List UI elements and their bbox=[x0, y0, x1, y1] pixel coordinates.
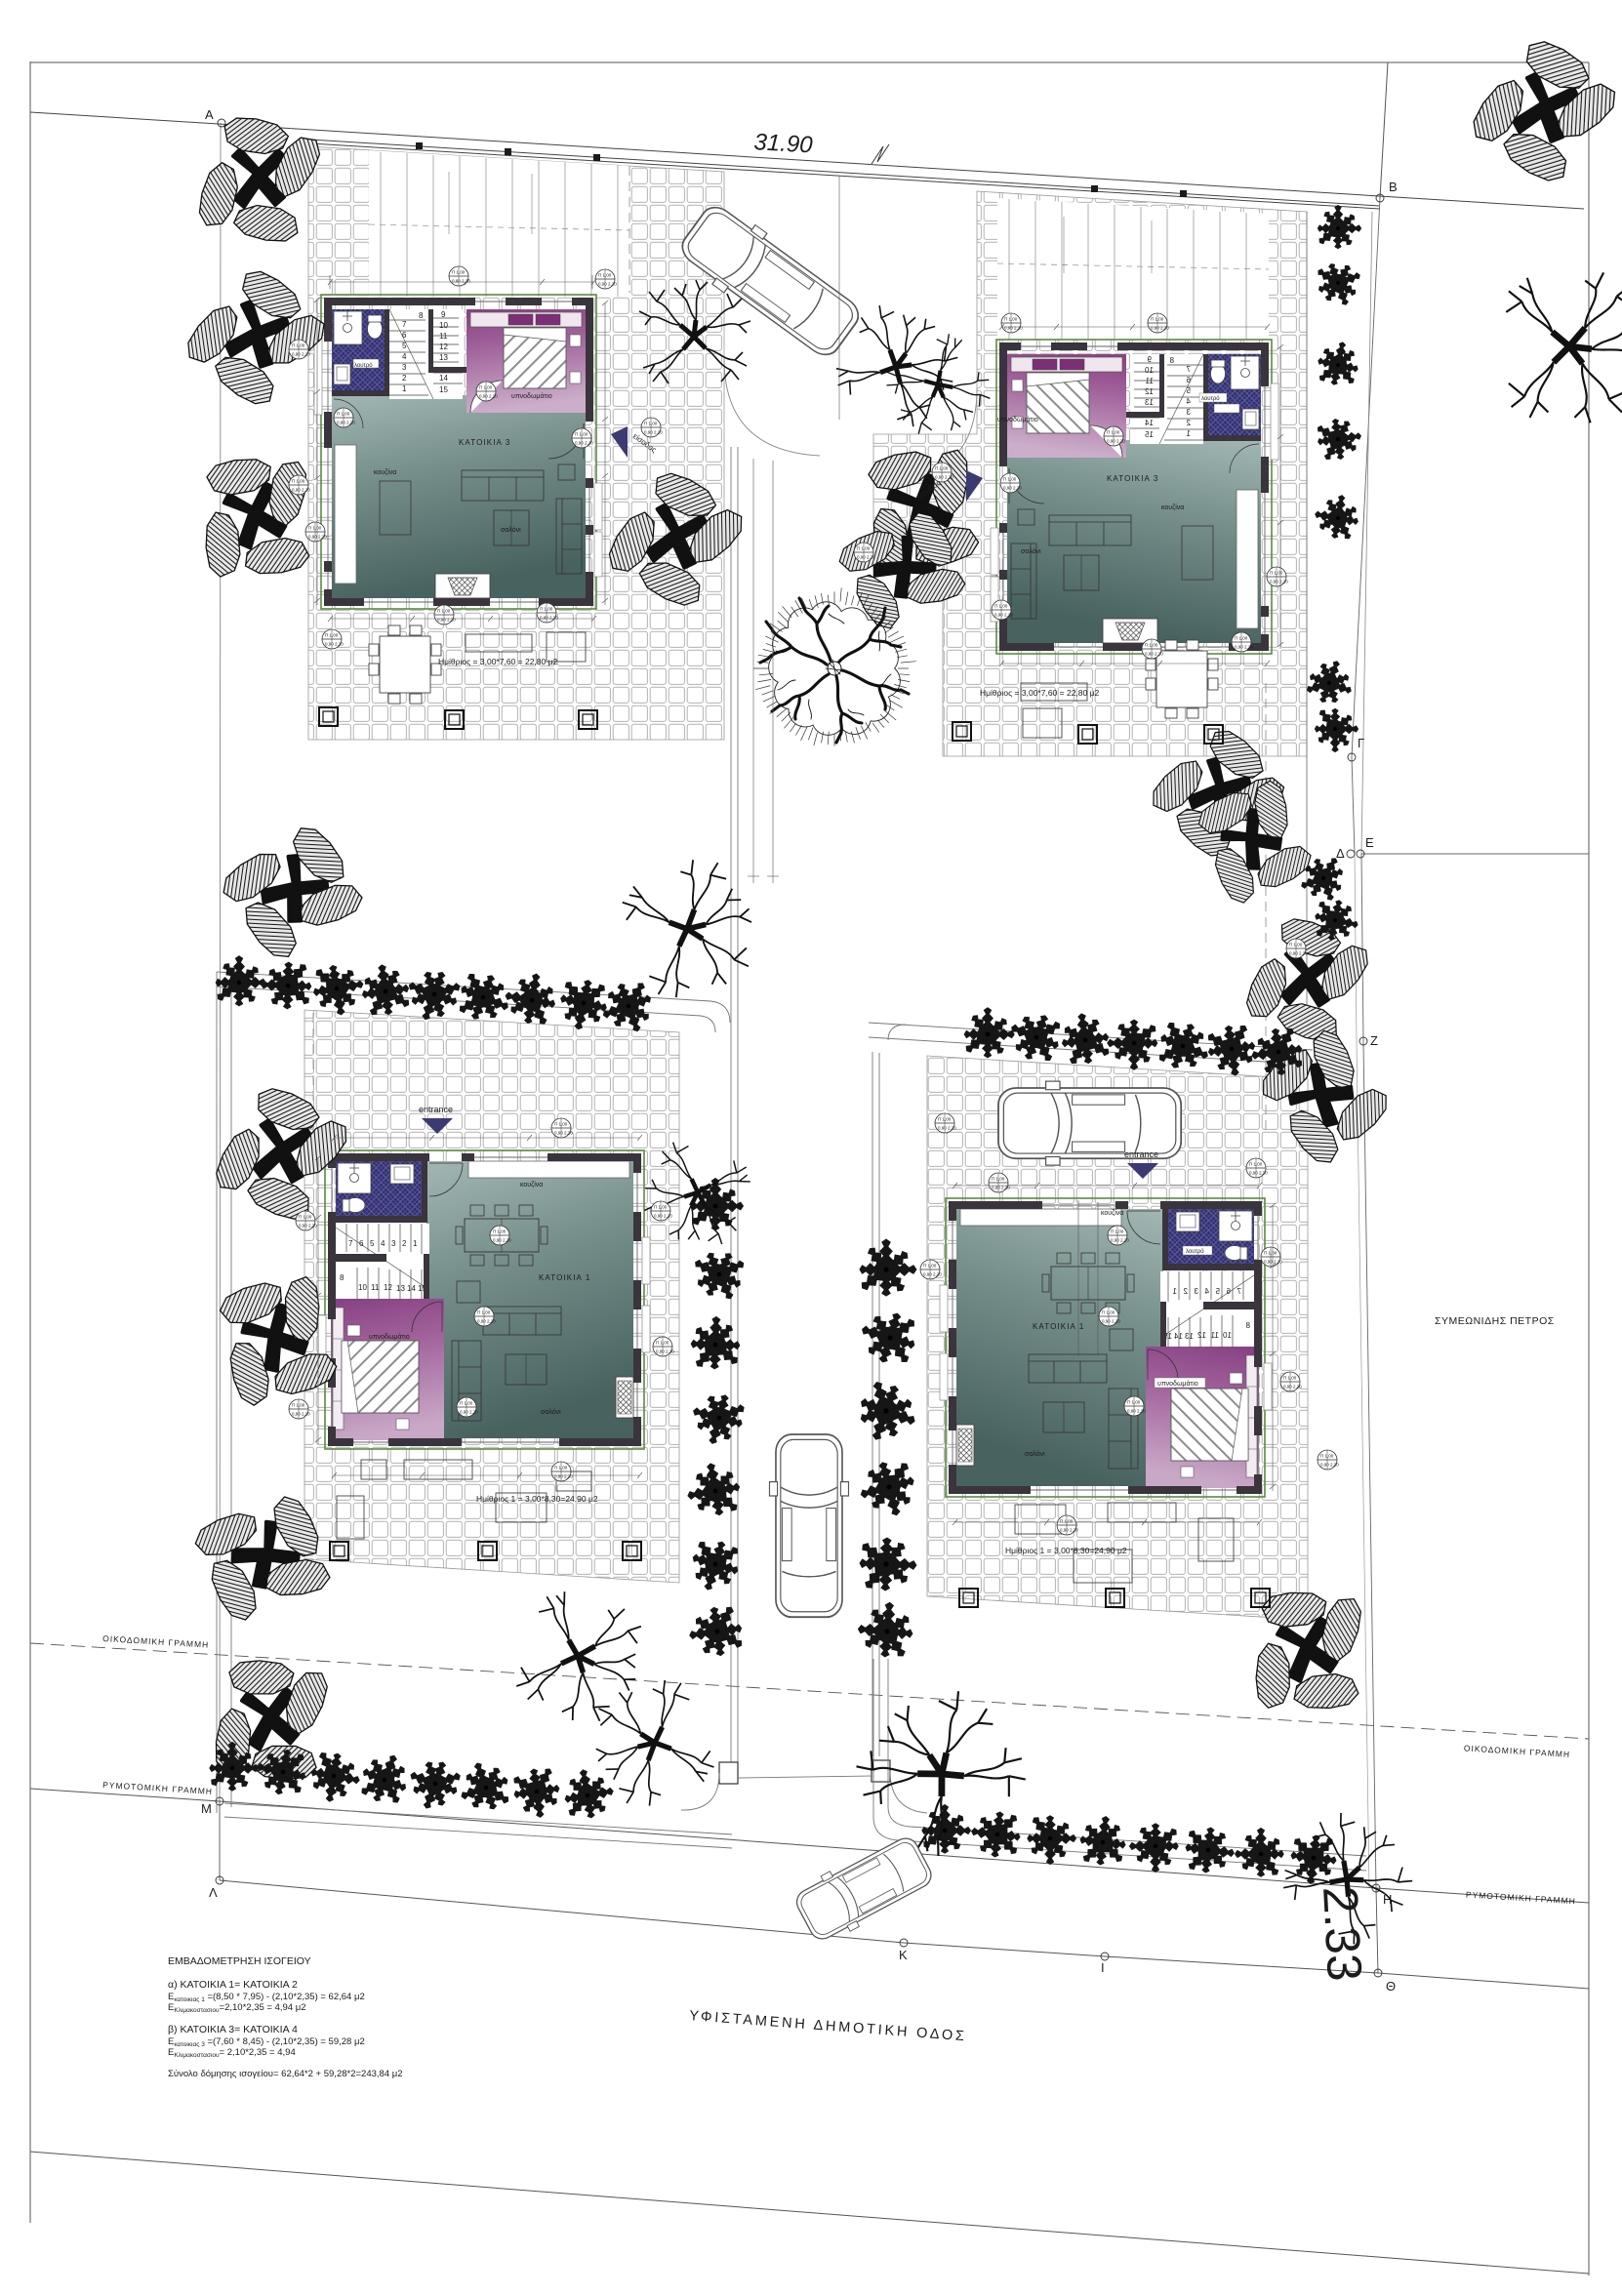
svg-text:Ημίθριος 1 = 3,00*8,30=24,90 μ: Ημίθριος 1 = 3,00*8,30=24,90 μ2 bbox=[1005, 1546, 1127, 1555]
svg-text:υπνοδωμάτιο: υπνοδωμάτιο bbox=[511, 392, 552, 400]
svg-text:KATOIKIA 1: KATOIKIA 1 bbox=[1033, 1322, 1084, 1331]
svg-text:Γ: Γ bbox=[1358, 736, 1364, 750]
svg-text:KATOIKIA 3: KATOIKIA 3 bbox=[1107, 474, 1158, 483]
svg-text:Λ: Λ bbox=[209, 1885, 218, 1900]
svg-text:σαλόνι: σαλόνι bbox=[1021, 547, 1041, 555]
svg-text:A: A bbox=[205, 107, 214, 122]
svg-text:σαλόνι: σαλόνι bbox=[1025, 1450, 1045, 1458]
svg-text:K: K bbox=[899, 1948, 908, 1962]
svg-text:Z: Z bbox=[1370, 1033, 1378, 1048]
svg-text:κουζίνα: κουζίνα bbox=[1161, 504, 1184, 511]
svg-text:λουτρό: λουτρό bbox=[1186, 1248, 1204, 1255]
svg-text:λουτρό: λουτρό bbox=[354, 362, 373, 369]
svg-text:entrance: entrance bbox=[1124, 1149, 1158, 1159]
svg-text:2.33: 2.33 bbox=[1313, 1885, 1372, 1983]
svg-text:α) ΚΑΤΟΙΚΙΑ 1= ΚΑΤΟΙΚΙΑ 2: α) ΚΑΤΟΙΚΙΑ 1= ΚΑΤΟΙΚΙΑ 2 bbox=[168, 1979, 298, 1991]
svg-text:31.90: 31.90 bbox=[753, 129, 814, 158]
svg-text:Ημίθριος = 3,00*7,60 = 22,80 μ: Ημίθριος = 3,00*7,60 = 22,80 μ2 bbox=[980, 688, 1099, 698]
svg-text:υπνοδωμάτιο: υπνοδωμάτιο bbox=[997, 416, 1038, 423]
svg-text:Ημίθριος = 3,00*7,60 = 22,80 μ: Ημίθριος = 3,00*7,60 = 22,80 μ2 bbox=[438, 657, 557, 666]
svg-text:κουζίνα: κουζίνα bbox=[520, 1181, 543, 1188]
svg-text:ΣΥΜΕΩΝΙΔΗΣ ΠΕΤΡΟΣ: ΣΥΜΕΩΝΙΔΗΣ ΠΕΤΡΟΣ bbox=[1435, 1315, 1555, 1327]
svg-text:σαλόνι: σαλόνι bbox=[541, 1408, 561, 1416]
svg-text:KATOIKIA 3: KATOIKIA 3 bbox=[459, 438, 510, 447]
svg-text:σαλόνι: σαλόνι bbox=[501, 526, 521, 534]
svg-text:I: I bbox=[1101, 1960, 1105, 1975]
svg-text:E: E bbox=[1365, 835, 1374, 850]
svg-text:Δ: Δ bbox=[1336, 846, 1345, 861]
svg-text:β) ΚΑΤΟΙΚΙΑ 3= ΚΑΤΟΙΚΙΑ 4: β) ΚΑΤΟΙΚΙΑ 3= ΚΑΤΟΙΚΙΑ 4 bbox=[168, 2024, 298, 2035]
svg-text:λουτρό: λουτρό bbox=[1201, 395, 1220, 402]
svg-text:κουζίνα: κουζίνα bbox=[374, 468, 396, 476]
svg-text:υπνοδωμάτιο: υπνοδωμάτιο bbox=[1157, 1380, 1198, 1388]
svg-text:Ημίθριος 1 = 3,00*8,30=24,90 μ: Ημίθριος 1 = 3,00*8,30=24,90 μ2 bbox=[476, 1494, 598, 1504]
svg-text:κουζίνα: κουζίνα bbox=[1101, 1209, 1123, 1217]
svg-text:entrance: entrance bbox=[419, 1105, 453, 1114]
svg-text:KATOIKIA 1: KATOIKIA 1 bbox=[539, 1273, 590, 1282]
svg-text:υπνοδωμάτιο: υπνοδωμάτιο bbox=[369, 1333, 410, 1341]
svg-text:B: B bbox=[1389, 180, 1398, 194]
svg-text:M: M bbox=[201, 1801, 212, 1816]
svg-text:ΕΜΒΑΔΟΜΕΤΡΗΣΗ ΙΣΟΓΕΙΟΥ: ΕΜΒΑΔΟΜΕΤΡΗΣΗ ΙΣΟΓΕΙΟΥ bbox=[168, 1955, 311, 1967]
svg-text:Σύνολο δόμησης ισογείου= 62,64: Σύνολο δόμησης ισογείου= 62,64*2 + 59,28… bbox=[168, 2069, 403, 2079]
svg-text:Θ: Θ bbox=[1386, 1979, 1396, 1994]
